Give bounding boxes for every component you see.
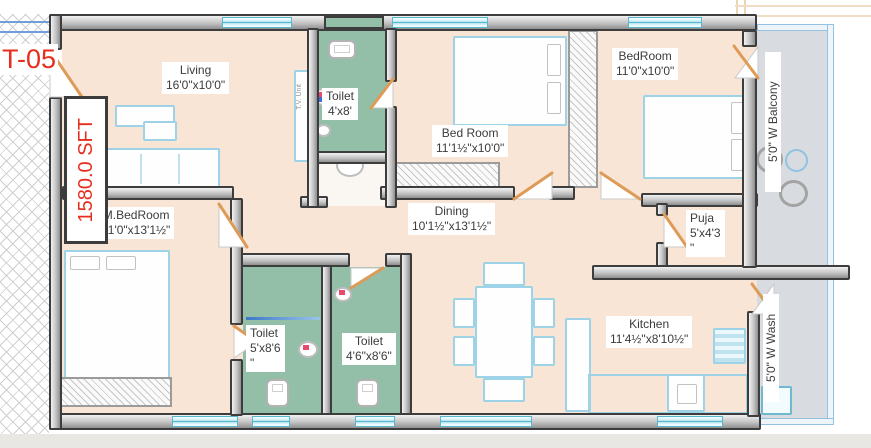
- room-label-toilet-top: Toilet 4'x8': [322, 88, 358, 120]
- window: [657, 416, 723, 427]
- room-label-master-bedroom: M.BedRoom 11'0"x13'1½": [98, 207, 174, 239]
- tv-unit-label: T.V. Unit: [296, 84, 303, 110]
- room-name: Dining: [435, 204, 469, 218]
- pillow: [547, 82, 561, 114]
- sink-bowl: [677, 384, 697, 404]
- wash-rail: [757, 418, 834, 425]
- bed: [643, 95, 751, 179]
- wall: [380, 186, 515, 200]
- wall: [400, 253, 412, 415]
- room-dims: 11'4½"x8'10½": [610, 332, 688, 347]
- room-dims: 5'x8'6: [250, 341, 281, 356]
- dining-chair: [483, 378, 525, 402]
- toilet-wc: [356, 379, 379, 407]
- area-label-box: 1580.0 SFT: [64, 96, 108, 244]
- unit-number-label: T-05: [0, 44, 58, 75]
- dining-chair: [533, 336, 555, 366]
- balcony-table: [785, 149, 808, 172]
- wall: [549, 186, 575, 200]
- room-dims: 11'0"x10'0": [616, 64, 674, 79]
- dining-chair: [453, 336, 475, 366]
- guide-line: [735, 5, 871, 7]
- wall: [321, 265, 332, 415]
- wall: [656, 203, 668, 216]
- room-label-bedroom-right: BedRoom 11'0"x10'0": [612, 48, 678, 80]
- wardrobe: [388, 162, 500, 189]
- wall: [230, 198, 243, 325]
- area-label: 1580.0 SFT: [75, 118, 98, 223]
- outside-hatch-area: [0, 14, 49, 448]
- room-name: Kitchen: [629, 317, 669, 331]
- guide-line: [0, 31, 49, 33]
- room-dims: 4'x8': [326, 104, 354, 119]
- window: [392, 17, 488, 28]
- room-name: Bed Room: [442, 126, 499, 140]
- balcony-chair: [779, 180, 808, 207]
- kitchen-sink: [667, 374, 705, 412]
- room-name: M.BedRoom: [103, 208, 170, 222]
- pillow: [547, 44, 561, 76]
- balcony-rail: [757, 24, 834, 31]
- wardrobe: [568, 30, 598, 188]
- room-dims-overflow: ": [690, 241, 721, 256]
- room-name: Toilet: [326, 89, 354, 103]
- room-label-bedroom-mid: Bed Room 11'1½"x10'0": [432, 125, 508, 157]
- window: [628, 17, 702, 28]
- room-dims: 10'1½"x13'1½": [412, 219, 491, 234]
- window: [355, 416, 395, 427]
- ground-strip: [0, 434, 871, 448]
- wall: [49, 413, 761, 430]
- wall: [747, 311, 760, 417]
- wall: [385, 106, 397, 208]
- dining-chair: [533, 298, 555, 328]
- shower-rail: [246, 317, 320, 320]
- wall: [307, 28, 319, 208]
- wash-label: 5'0" W Wash: [763, 294, 779, 402]
- toilet-vent-window: [324, 16, 384, 29]
- sofa: [102, 148, 220, 190]
- room-dims: 11'1½"x10'0": [436, 141, 504, 156]
- room-label-toilet-right: Toilet 4'6"x8'6": [342, 333, 396, 365]
- tap-hot: [339, 290, 345, 295]
- wall: [230, 359, 243, 416]
- room-name: Toilet: [355, 334, 383, 348]
- wall: [592, 265, 850, 280]
- room-name: Puja: [690, 211, 714, 225]
- wall: [232, 253, 350, 267]
- room-dims: 11'0"x13'1½": [102, 223, 170, 238]
- floor-plan: T.V. Unit: [0, 0, 871, 448]
- balcony-label: 5'0" W Balcony: [765, 52, 781, 192]
- coffee-table: [143, 121, 177, 141]
- room-label-puja: Puja 5'x4'3 ": [686, 210, 725, 257]
- wardrobe: [58, 377, 172, 407]
- toilet-wc: [266, 379, 289, 407]
- room-dims: 4'6"x8'6": [346, 349, 392, 364]
- wall: [656, 242, 668, 267]
- room-name: Toilet: [250, 326, 278, 340]
- guide-line: [736, 0, 738, 14]
- room-dims: 5'x4'3: [690, 226, 721, 241]
- wall: [385, 28, 397, 82]
- room-dims: 16'0"x10'0": [166, 78, 225, 93]
- guide-line: [0, 21, 49, 23]
- dining-chair: [483, 262, 525, 286]
- window: [252, 416, 290, 427]
- room-name: Living: [180, 63, 211, 77]
- pillow: [70, 256, 100, 270]
- sofa-seam: [178, 154, 180, 184]
- bed: [453, 36, 567, 126]
- wall: [742, 76, 757, 268]
- window: [222, 17, 292, 28]
- sofa-seam: [140, 154, 142, 184]
- window: [440, 416, 532, 427]
- wall: [742, 30, 757, 47]
- stove: [713, 328, 746, 364]
- dining-chair: [453, 298, 475, 328]
- window: [172, 416, 238, 427]
- wall: [49, 97, 62, 430]
- room-dims-overflow: ": [250, 356, 281, 371]
- guide-line: [744, 0, 746, 14]
- tap-hot: [303, 345, 309, 350]
- toilet-wc: [328, 40, 356, 59]
- dining-table: [475, 286, 533, 378]
- bed: [64, 250, 170, 396]
- room-label-toilet-left: Toilet 5'x8'6 ": [246, 325, 285, 372]
- room-name: BedRoom: [618, 49, 671, 63]
- balcony-rail: [827, 24, 834, 425]
- pillow: [106, 256, 136, 270]
- room-label-kitchen: Kitchen 11'4½"x8'10½": [606, 316, 692, 348]
- room-label-dining: Dining 10'1½"x13'1½": [408, 203, 495, 235]
- wall: [314, 151, 392, 164]
- room-label-living: Living 16'0"x10'0": [162, 62, 229, 94]
